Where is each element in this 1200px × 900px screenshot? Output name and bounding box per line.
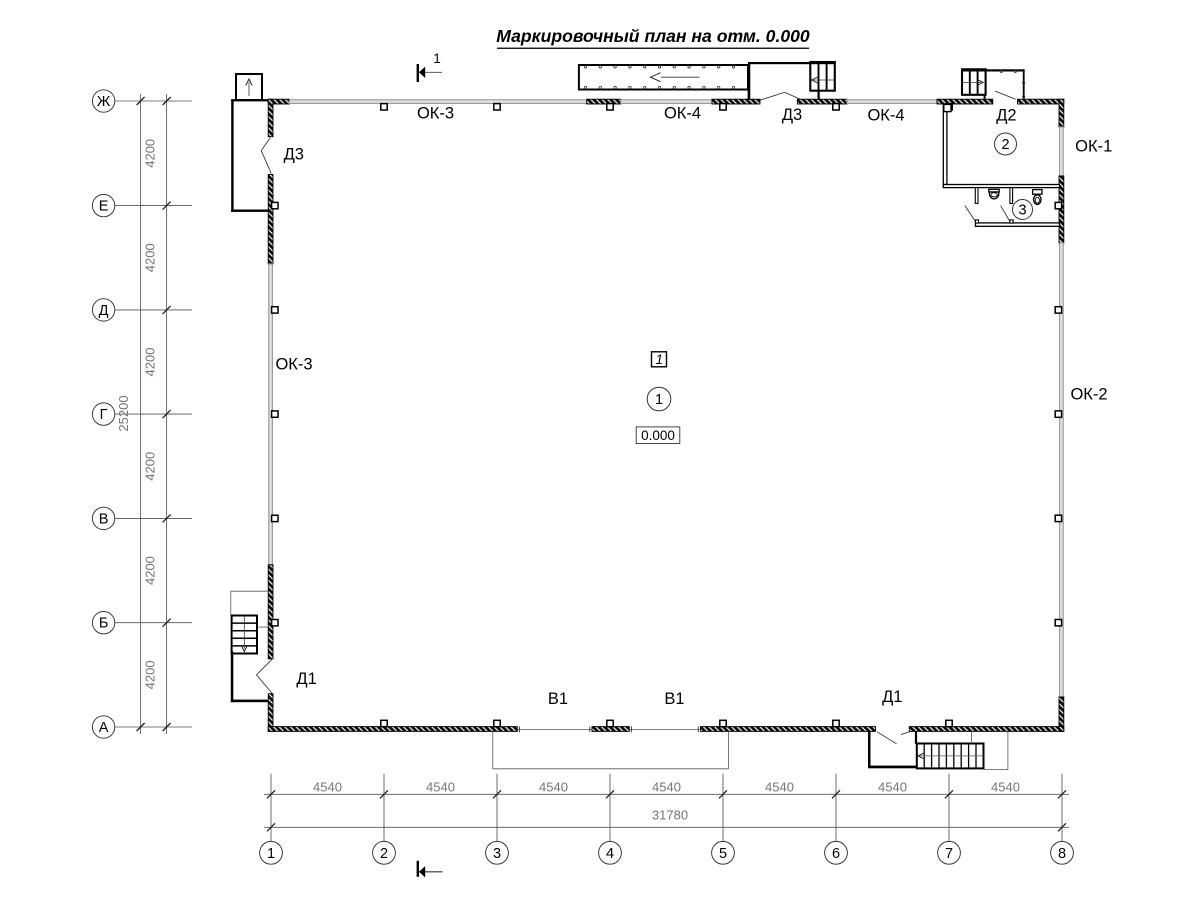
svg-text:Д2: Д2 <box>996 106 1016 124</box>
svg-text:Д1: Д1 <box>882 688 902 706</box>
svg-text:6: 6 <box>832 846 840 862</box>
svg-text:4540: 4540 <box>313 780 342 795</box>
svg-text:8: 8 <box>1058 846 1066 862</box>
svg-text:1: 1 <box>655 392 663 408</box>
svg-text:4200: 4200 <box>143 348 158 377</box>
svg-text:31780: 31780 <box>652 808 688 823</box>
svg-text:Б: Б <box>99 616 109 632</box>
svg-text:4200: 4200 <box>143 452 158 481</box>
svg-text:4200: 4200 <box>143 660 158 689</box>
svg-text:2: 2 <box>380 846 388 862</box>
svg-text:0.000: 0.000 <box>641 428 675 443</box>
svg-text:4540: 4540 <box>426 780 455 795</box>
svg-text:4540: 4540 <box>539 780 568 795</box>
svg-text:1: 1 <box>656 352 664 367</box>
svg-text:2: 2 <box>1001 137 1009 153</box>
svg-text:Д: Д <box>99 303 109 319</box>
svg-text:4: 4 <box>606 846 614 862</box>
svg-text:4540: 4540 <box>878 780 907 795</box>
svg-text:ОК-4: ОК-4 <box>867 106 904 124</box>
svg-text:ОК-2: ОК-2 <box>1070 386 1107 404</box>
svg-text:В1: В1 <box>664 690 684 708</box>
svg-text:Е: Е <box>99 199 109 215</box>
svg-text:1: 1 <box>433 51 441 66</box>
svg-text:25200: 25200 <box>116 395 131 431</box>
svg-text:ОК-3: ОК-3 <box>417 104 454 122</box>
svg-text:Г: Г <box>100 407 108 423</box>
svg-text:4200: 4200 <box>143 139 158 168</box>
svg-text:Ж: Ж <box>97 94 111 110</box>
svg-text:4540: 4540 <box>765 780 794 795</box>
svg-text:В1: В1 <box>548 690 568 708</box>
svg-text:4200: 4200 <box>143 556 158 585</box>
svg-text:4200: 4200 <box>143 243 158 272</box>
svg-text:Д3: Д3 <box>782 106 802 124</box>
svg-text:3: 3 <box>1018 202 1026 218</box>
svg-text:ОК-3: ОК-3 <box>275 355 312 373</box>
svg-text:Д3: Д3 <box>284 146 304 164</box>
svg-text:7: 7 <box>945 846 953 862</box>
svg-text:А: А <box>99 720 109 736</box>
svg-text:ОК-4: ОК-4 <box>664 104 701 122</box>
svg-text:В: В <box>99 511 109 527</box>
svg-text:4540: 4540 <box>991 780 1020 795</box>
svg-text:3: 3 <box>493 846 501 862</box>
svg-text:1: 1 <box>267 846 275 862</box>
svg-text:4540: 4540 <box>652 780 681 795</box>
svg-text:5: 5 <box>719 846 727 862</box>
svg-text:Маркировочный план на отм. 0.0: Маркировочный план на отм. 0.000 <box>496 26 810 46</box>
svg-text:Д1: Д1 <box>296 670 316 688</box>
svg-text:ОК-1: ОК-1 <box>1075 137 1112 155</box>
